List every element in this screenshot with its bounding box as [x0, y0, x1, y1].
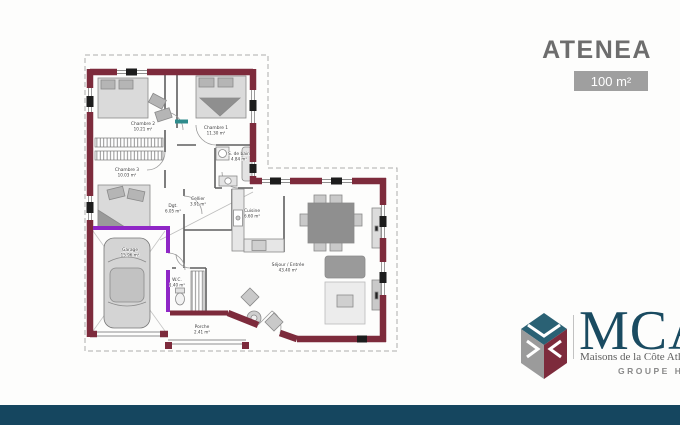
porch-posts [165, 342, 249, 349]
svg-text:10.03 m²: 10.03 m² [118, 172, 137, 177]
plan-title: ATENEA [542, 36, 652, 65]
entry-seats [241, 288, 283, 331]
svg-text:3.91 m²: 3.91 m² [190, 201, 206, 206]
bed-icon [98, 185, 150, 229]
toilet-icon [176, 288, 185, 305]
svg-text:6.60 m²: 6.60 m² [244, 213, 260, 218]
area-badge: 100 m² [574, 71, 648, 91]
svg-text:43.40 m²: 43.40 m² [279, 267, 298, 272]
room-label-cellier: Cellier 3.91 m² [190, 196, 206, 206]
mca-group-text: GROUPE HEXAOM [618, 366, 680, 376]
teal-marker [175, 120, 188, 124]
room-label-chambre-3: Chambre 3 10.03 m² [115, 167, 139, 177]
furniture [98, 76, 381, 331]
room-label-porche: Porche 2.41 m² [194, 324, 210, 334]
svg-text:10.21 m²: 10.21 m² [134, 126, 153, 131]
mca-tagline: Maisons de la Côte Atlantique [580, 351, 680, 363]
svg-text:6.05 m²: 6.05 m² [165, 208, 181, 213]
svg-text:11.30 m²: 11.30 m² [207, 130, 226, 135]
svg-text:4.84 m²: 4.84 m² [231, 156, 247, 161]
svg-text:1.40 m²: 1.40 m² [169, 282, 185, 287]
footer-bar [0, 405, 680, 425]
room-label-garage: Garage 15.96 m² [121, 247, 140, 257]
bed-icon [98, 78, 172, 122]
room-label-degagement: Dgt. 6.05 m² [165, 203, 181, 213]
svg-text:15.96 m²: 15.96 m² [121, 252, 140, 257]
room-label-sejour-entree: Séjour / Entrée 43.40 m² [272, 261, 305, 272]
room-label-chambre-1: Chambre 1 11.30 m² [204, 125, 228, 135]
room-label-chambre-2: Chambre 2 10.21 m² [131, 121, 155, 131]
svg-text:2.41 m²: 2.41 m² [194, 329, 210, 334]
bed-icon [196, 76, 246, 118]
dining-table-icon [300, 195, 362, 251]
kitchen-counters [232, 189, 284, 252]
mca-logo-icon [519, 311, 569, 383]
logo-divider [573, 315, 574, 359]
room-label-cuisine: Cuisine 6.60 m² [244, 208, 260, 218]
room-label-wc: W.C. 1.40 m² [169, 277, 185, 287]
flyer-page: Chambre 2 10.21 m² Chambre 1 11.30 m² S.… [0, 0, 680, 425]
room-label-salle-de-bain: S. de bain 4.84 m² [228, 151, 250, 161]
